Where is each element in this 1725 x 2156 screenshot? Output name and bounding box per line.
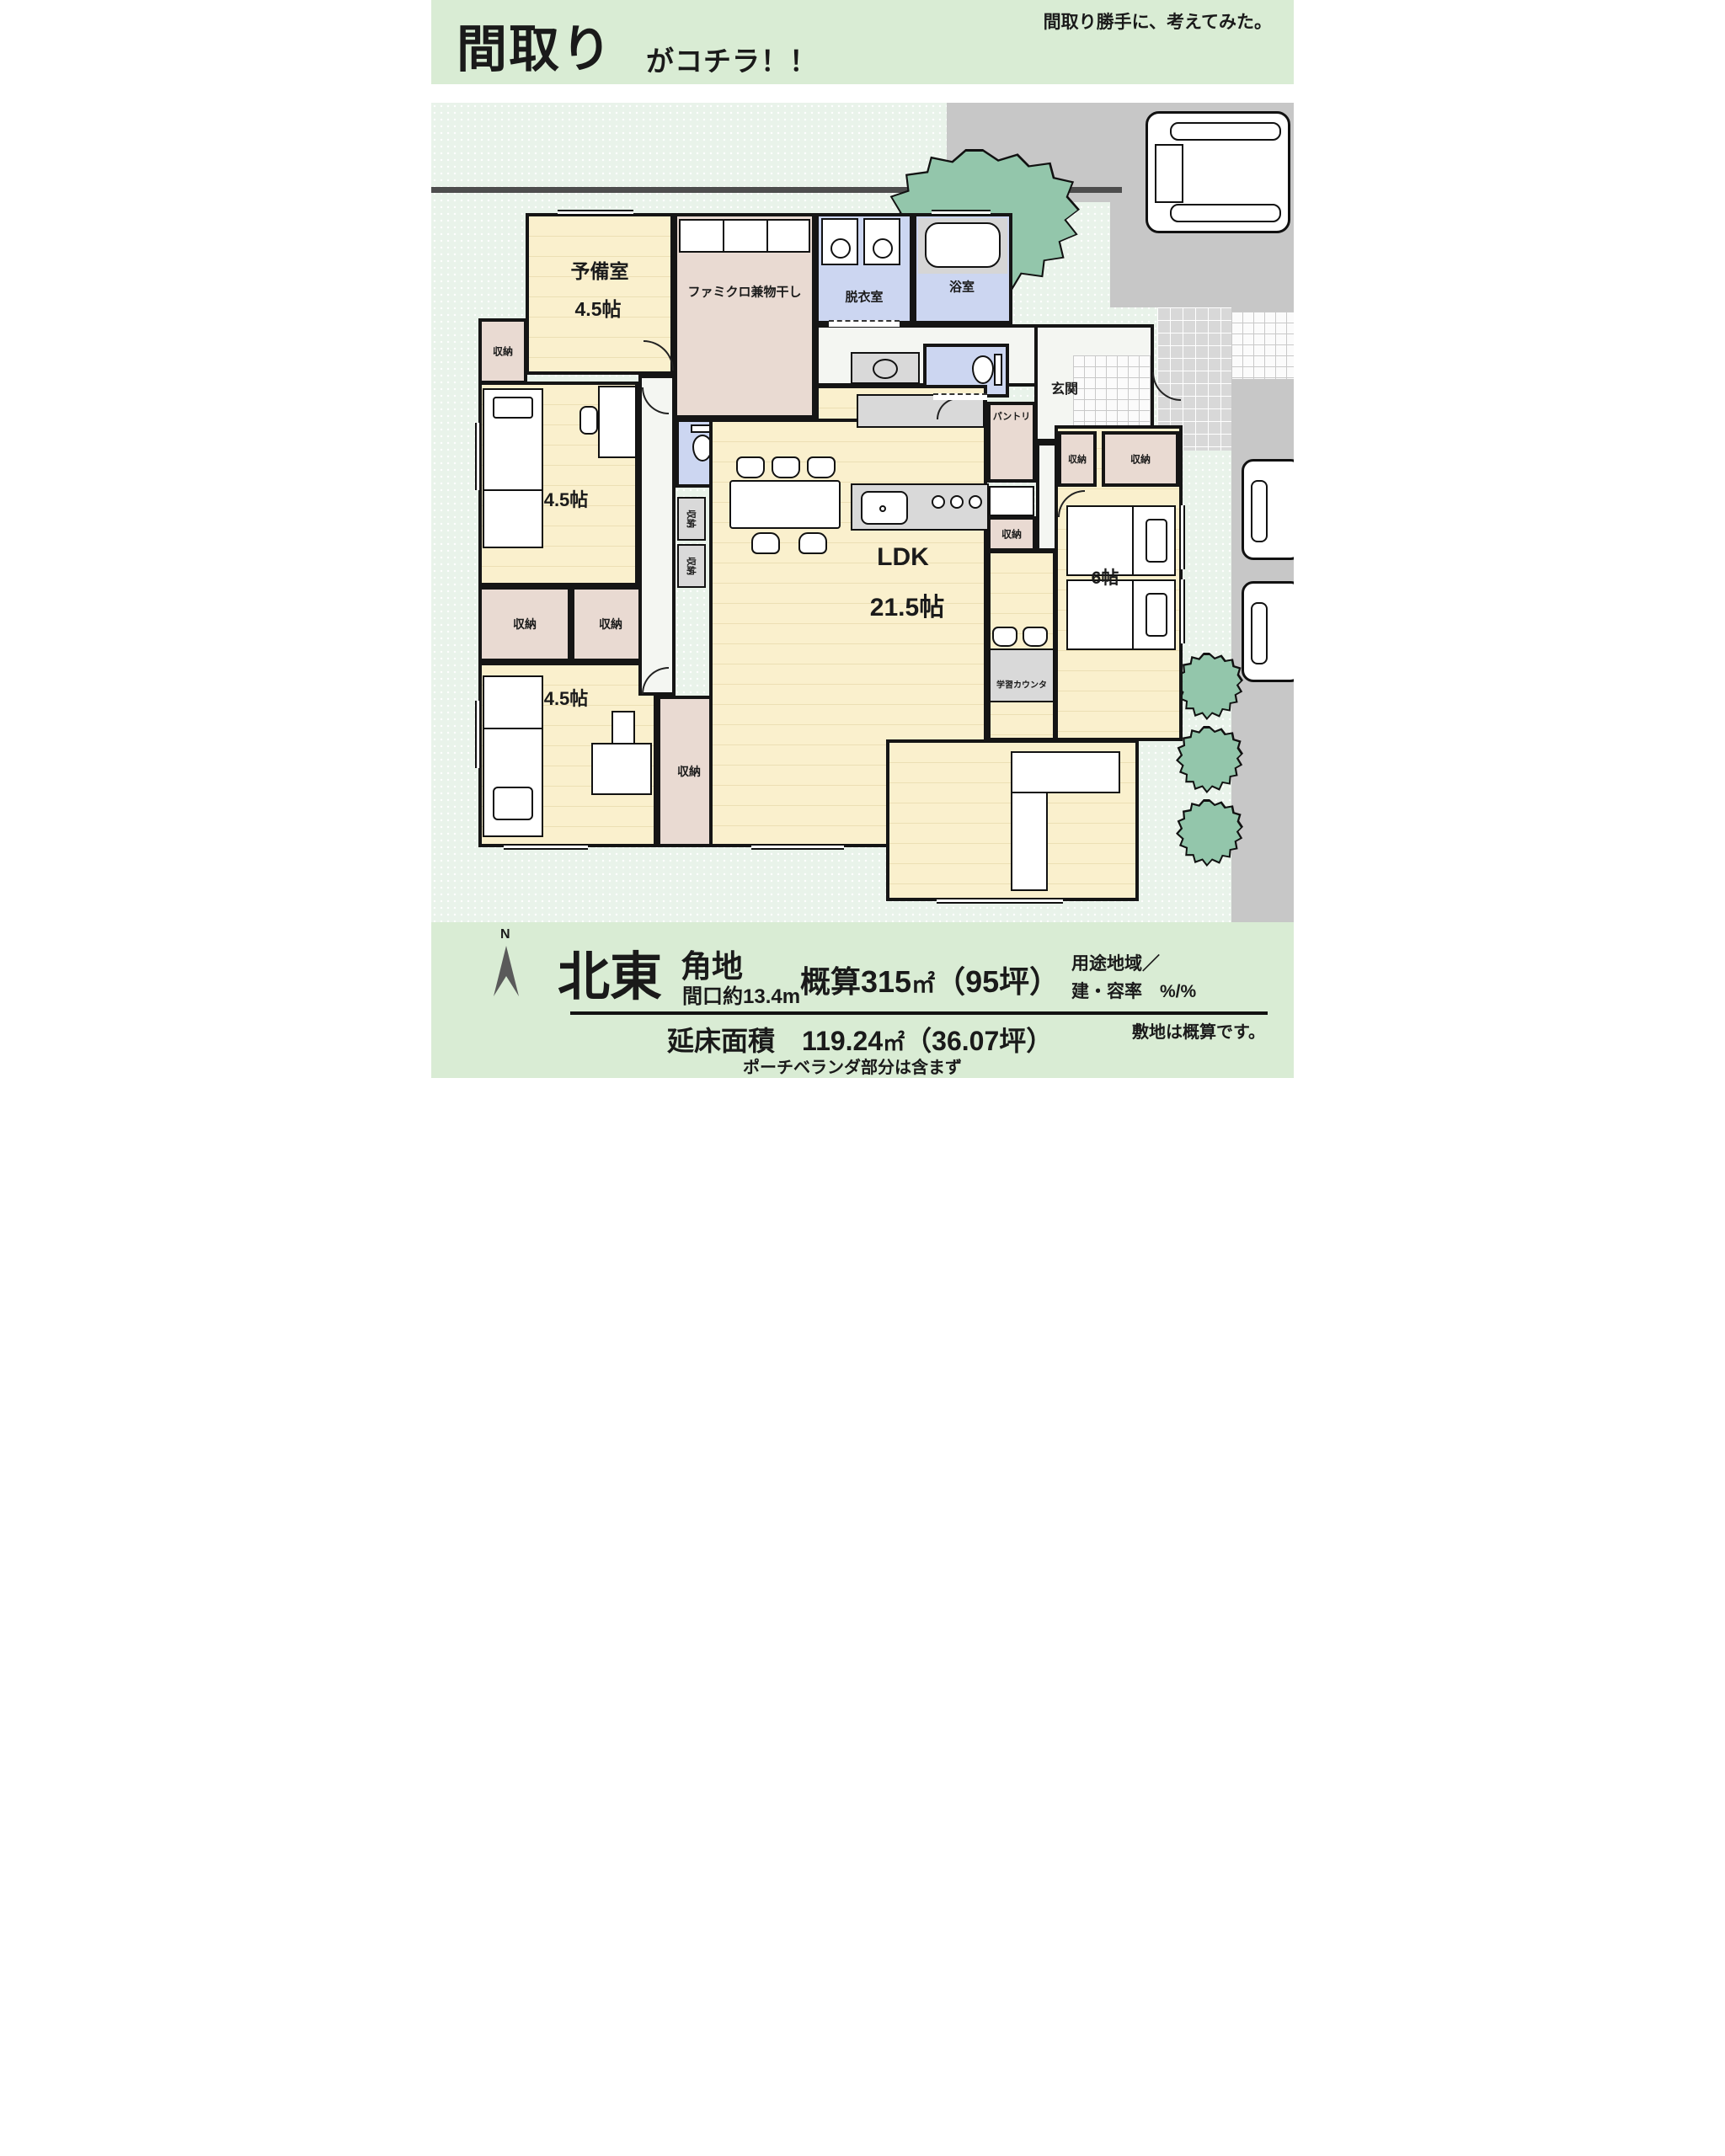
floor-area-tsubo: （36.07坪） bbox=[905, 1026, 1053, 1056]
room-pantry-name: パントリ bbox=[993, 409, 1031, 423]
room-bath-name: 浴室 bbox=[949, 278, 975, 296]
desk-icon bbox=[591, 743, 652, 795]
toilet-tank bbox=[994, 354, 1002, 386]
dining-table bbox=[729, 480, 841, 529]
room-reserve-name: 予備室 bbox=[571, 255, 629, 284]
sidewalk-tiles bbox=[1231, 312, 1294, 379]
compass-n-label: N bbox=[500, 927, 510, 942]
wardrobe-cabinets bbox=[679, 219, 810, 253]
bed-icon bbox=[1066, 579, 1176, 650]
zoning-text: 用途地域／ 建・容率 %/% bbox=[1071, 951, 1196, 1006]
washing-machine-icon bbox=[863, 218, 900, 265]
closet-label: 収納 bbox=[599, 616, 622, 632]
site-area-text: 概算315㎡（95坪） bbox=[800, 958, 1060, 1001]
study-counter bbox=[989, 648, 1055, 702]
refrigerator bbox=[989, 486, 1034, 516]
closet-label: 収納 bbox=[677, 763, 701, 780]
closet-label: 収納 bbox=[493, 344, 513, 359]
parked-car-icon bbox=[1242, 581, 1294, 682]
page-title-sub: がコチラ！！ bbox=[646, 39, 818, 79]
divider-line bbox=[570, 1011, 1268, 1015]
room-dressing-name: 脱衣室 bbox=[845, 288, 883, 306]
direction-label: 北東 bbox=[558, 934, 662, 1010]
site-note: 敷地は概算です。 bbox=[1132, 1018, 1265, 1043]
site-area-tsubo: （95坪） bbox=[935, 964, 1060, 999]
closet-label: 収納 bbox=[685, 557, 698, 575]
window bbox=[1179, 505, 1185, 569]
dining-chair-icon bbox=[751, 532, 780, 554]
floor-area-label: 延床面積 bbox=[667, 1026, 775, 1056]
frontage-label: 間口約13.4m bbox=[682, 979, 800, 1009]
hallway-central bbox=[638, 375, 676, 696]
window bbox=[475, 701, 481, 768]
closet-label: 収納 bbox=[685, 510, 698, 528]
sliding-door-mark bbox=[933, 393, 987, 400]
site-area-unit: ㎡ bbox=[911, 971, 935, 997]
room-entrance-name: 玄関 bbox=[1051, 377, 1078, 398]
desk-icon bbox=[598, 386, 637, 458]
washing-machine-icon bbox=[821, 218, 858, 265]
window bbox=[558, 210, 633, 216]
floor-area-value: 119.24 bbox=[802, 1026, 883, 1056]
window bbox=[751, 844, 844, 850]
window bbox=[937, 898, 1063, 904]
floor-plan-page: 間取り がコチラ！！ 間取り勝手に、考えてみた。 bbox=[431, 0, 1294, 1078]
dining-chair-icon bbox=[807, 456, 836, 478]
room-bedroom-e-size: 6帖 bbox=[1092, 564, 1119, 590]
header-tagline: 間取り勝手に、考えてみた。 bbox=[1044, 8, 1272, 34]
closet-label: 収納 bbox=[1068, 452, 1087, 466]
desk-monitor-icon bbox=[611, 711, 635, 744]
room-famiclo-name: ファミクロ兼物干し bbox=[687, 283, 801, 301]
sofa bbox=[1011, 751, 1120, 793]
bathtub-icon bbox=[925, 222, 1001, 268]
site-area: 予備室 4.5帖 収納 ファミクロ兼物干し 脱衣室 浴室 玄関 パン bbox=[431, 103, 1294, 922]
window bbox=[1179, 579, 1185, 643]
sliding-door-mark bbox=[829, 320, 900, 327]
room-bedroom-sw-size: 4.5帖 bbox=[544, 684, 589, 711]
bed-icon bbox=[483, 388, 543, 548]
study-counter-label: 学習カウンタ bbox=[996, 678, 1047, 691]
page-title: 間取り bbox=[457, 8, 613, 82]
zoning-line1: 用途地域／ bbox=[1071, 951, 1196, 979]
zoning-line2: 建・容率 %/% bbox=[1071, 979, 1196, 1006]
car-icon bbox=[1146, 111, 1290, 233]
desk-chair-icon bbox=[579, 406, 598, 435]
room-ldk-size: 21.5帖 bbox=[870, 586, 944, 623]
kitchen-island bbox=[851, 483, 989, 531]
bed-icon bbox=[483, 675, 543, 837]
dining-chair-icon bbox=[736, 456, 765, 478]
study-chair-icon bbox=[1023, 627, 1048, 647]
room-reserve-size: 4.5帖 bbox=[575, 293, 622, 322]
north-arrow-notch bbox=[494, 976, 519, 996]
window bbox=[475, 423, 481, 490]
closet-label: 収納 bbox=[513, 616, 537, 632]
closet-label: 収納 bbox=[1001, 527, 1022, 542]
footer-band: N 北東 角地 間口約13.4m 概算315㎡（95坪） 用途地域／ 建・容率 … bbox=[431, 922, 1294, 1078]
dining-chair-icon bbox=[772, 456, 800, 478]
room-ldk-name: LDK bbox=[877, 543, 929, 572]
window bbox=[932, 210, 991, 216]
study-chair-icon bbox=[992, 627, 1017, 647]
window bbox=[504, 844, 588, 850]
washbasin bbox=[851, 352, 920, 384]
site-area-prefix: 概算315 bbox=[800, 964, 911, 999]
floor-area-unit: ㎡ bbox=[883, 1030, 905, 1055]
room-bedroom-nw-size: 4.5帖 bbox=[544, 485, 589, 512]
closet-label: 収納 bbox=[1130, 452, 1151, 467]
dining-chair-icon bbox=[798, 532, 827, 554]
porch-note: ポーチベランダ部分は含まず bbox=[743, 1054, 962, 1078]
header-band: 間取り がコチラ！！ 間取り勝手に、考えてみた。 bbox=[431, 0, 1294, 84]
parked-car-icon bbox=[1242, 459, 1294, 560]
